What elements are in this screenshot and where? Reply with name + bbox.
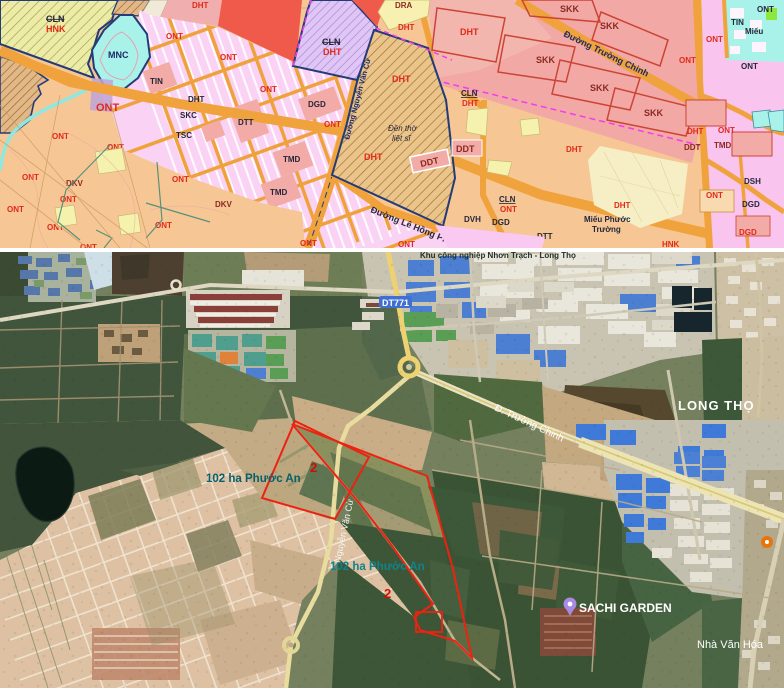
svg-text:SKK: SKK xyxy=(644,108,664,118)
svg-text:DHT: DHT xyxy=(392,74,411,84)
svg-text:SKK: SKK xyxy=(536,55,556,65)
svg-text:ONT: ONT xyxy=(300,239,317,248)
svg-text:Nhà Văn Hóa: Nhà Văn Hóa xyxy=(697,639,764,651)
svg-text:TIN: TIN xyxy=(150,77,163,86)
svg-text:Khu công nghiệp Nhơn Trạch - L: Khu công nghiệp Nhơn Trạch - Long Thọ xyxy=(420,251,576,260)
svg-text:ONT: ONT xyxy=(398,240,415,249)
svg-text:SKK: SKK xyxy=(590,83,610,93)
svg-text:DDT: DDT xyxy=(456,144,475,154)
svg-text:102 ha Phước An: 102 ha Phước An xyxy=(206,473,301,485)
svg-text:ONT: ONT xyxy=(52,132,69,141)
svg-text:DHT: DHT xyxy=(614,201,631,210)
svg-text:SKK: SKK xyxy=(560,4,580,14)
svg-text:Đền thờ: Đền thờ xyxy=(388,124,418,133)
svg-text:MNC: MNC xyxy=(108,50,129,60)
svg-text:Miếu Phước: Miếu Phước xyxy=(584,215,631,224)
svg-text:TSC: TSC xyxy=(176,131,192,140)
svg-text:DHT: DHT xyxy=(364,152,383,162)
svg-text:DGD: DGD xyxy=(742,200,760,209)
svg-text:ONT: ONT xyxy=(166,32,183,41)
svg-text:CLN: CLN xyxy=(46,14,65,24)
svg-text:DRA: DRA xyxy=(395,1,413,10)
svg-text:ONT: ONT xyxy=(741,62,758,71)
svg-text:Miếu: Miếu xyxy=(745,27,763,36)
svg-text:HNK: HNK xyxy=(46,24,66,34)
svg-text:CLN: CLN xyxy=(461,89,478,98)
svg-text:DHT: DHT xyxy=(566,145,583,154)
svg-text:ONT: ONT xyxy=(500,205,517,214)
svg-text:ONT: ONT xyxy=(718,126,735,135)
svg-text:DDT: DDT xyxy=(684,143,701,152)
svg-text:ONT: ONT xyxy=(172,175,189,184)
svg-text:2: 2 xyxy=(384,586,391,601)
svg-text:2: 2 xyxy=(310,460,317,475)
svg-text:DSH: DSH xyxy=(744,177,761,186)
svg-text:ONT: ONT xyxy=(7,205,24,214)
svg-text:DT771: DT771 xyxy=(382,298,409,308)
svg-text:102 ha Phước An: 102 ha Phước An xyxy=(330,561,425,573)
svg-text:DTT: DTT xyxy=(238,118,254,127)
svg-text:DGD: DGD xyxy=(308,100,326,109)
svg-text:DVH: DVH xyxy=(464,215,481,224)
svg-text:CLN: CLN xyxy=(322,37,341,47)
svg-text:DHT: DHT xyxy=(687,127,704,136)
svg-text:TMD: TMD xyxy=(283,155,301,164)
svg-text:HNK: HNK xyxy=(662,240,680,249)
svg-text:DHT: DHT xyxy=(323,47,342,57)
svg-text:SKK: SKK xyxy=(600,21,620,31)
svg-text:TMD: TMD xyxy=(270,188,288,197)
svg-text:ONT: ONT xyxy=(220,53,237,62)
svg-text:LONG THỌ: LONG THỌ xyxy=(678,398,755,413)
svg-text:DGD: DGD xyxy=(739,228,757,237)
svg-text:Trường: Trường xyxy=(592,225,621,234)
svg-text:ONT: ONT xyxy=(324,120,341,129)
svg-text:ONT: ONT xyxy=(706,191,723,200)
svg-text:ONT: ONT xyxy=(757,5,774,14)
svg-text:TMD: TMD xyxy=(714,141,732,150)
svg-text:DHT: DHT xyxy=(192,1,209,10)
svg-text:SKC: SKC xyxy=(180,111,197,120)
svg-text:DGD: DGD xyxy=(492,218,510,227)
svg-text:DHT: DHT xyxy=(188,95,205,104)
svg-text:ONT: ONT xyxy=(260,85,277,94)
svg-text:DHT: DHT xyxy=(460,27,479,37)
svg-text:TIN: TIN xyxy=(731,18,744,27)
svg-text:DHT: DHT xyxy=(398,23,415,32)
svg-text:ONT: ONT xyxy=(679,56,696,65)
svg-text:DHT: DHT xyxy=(462,99,479,108)
svg-text:liệt sĩ: liệt sĩ xyxy=(392,134,411,143)
svg-text:CLN: CLN xyxy=(499,195,516,204)
svg-text:SACHI GARDEN: SACHI GARDEN xyxy=(579,601,672,615)
svg-text:DKV: DKV xyxy=(215,200,233,209)
svg-text:ONT: ONT xyxy=(706,35,723,44)
svg-text:ONT: ONT xyxy=(96,102,120,114)
